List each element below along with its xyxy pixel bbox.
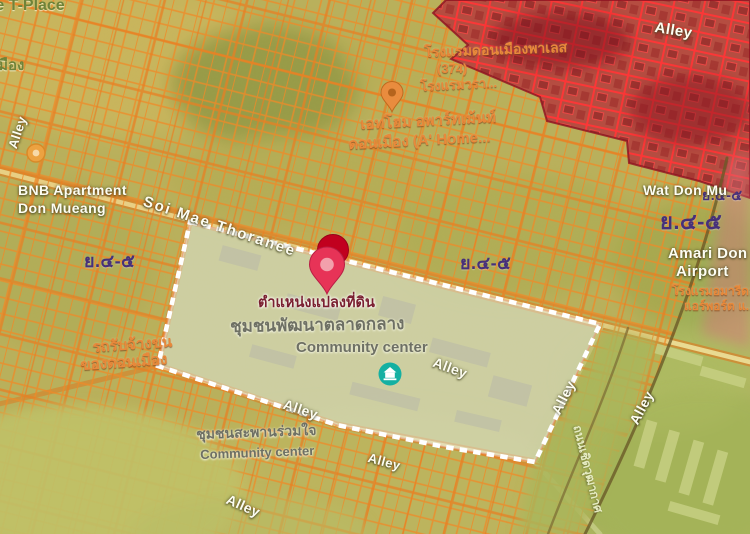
- poi-teal-community[interactable]: [379, 363, 402, 386]
- poi-orange-circle[interactable]: [27, 144, 45, 162]
- map-graphics: [0, 0, 750, 534]
- map-canvas[interactable]: te T-Place เมือง Alley Alley โรงแรมดอนเม…: [0, 0, 750, 534]
